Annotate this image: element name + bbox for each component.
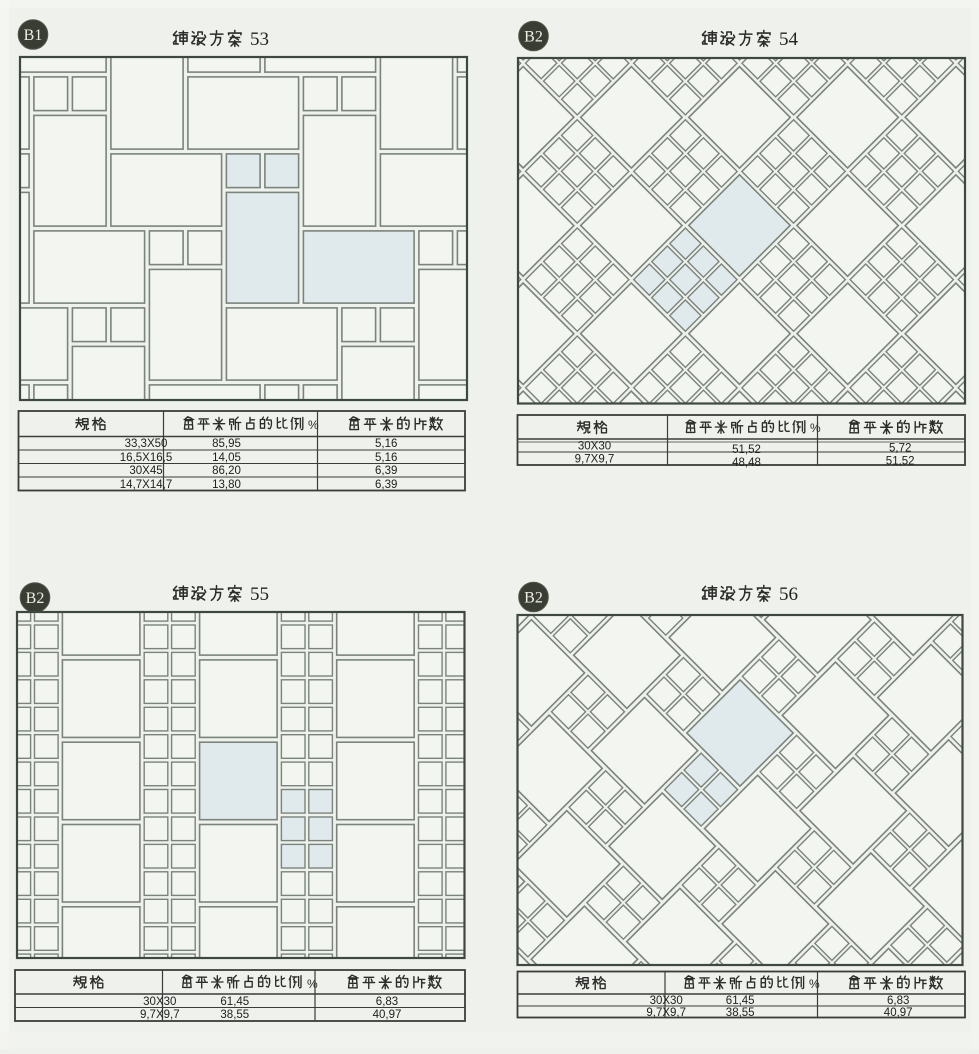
svg-text:6,39: 6,39: [375, 479, 397, 491]
svg-text:B2: B2: [524, 29, 543, 46]
svg-text:86,20: 86,20: [212, 465, 241, 477]
svg-text:9,7X9,7: 9,7X9,7: [575, 454, 615, 466]
svg-text:5,72: 5,72: [889, 443, 911, 455]
svg-text:6,83: 6,83: [887, 995, 909, 1007]
svg-text:13,80: 13,80: [212, 479, 241, 491]
svg-text:%: %: [307, 977, 318, 991]
svg-text:%: %: [809, 977, 820, 991]
svg-text:38,55: 38,55: [220, 1009, 249, 1021]
svg-text:40,97: 40,97: [884, 1007, 913, 1019]
svg-text:9,7X9,7: 9,7X9,7: [646, 1007, 686, 1019]
svg-text:14,05: 14,05: [212, 452, 241, 464]
svg-text:5,16: 5,16: [375, 452, 397, 464]
svg-text:B2: B2: [524, 590, 543, 607]
svg-text:38,55: 38,55: [726, 1007, 755, 1019]
svg-text:51,52: 51,52: [886, 456, 915, 468]
svg-text:30X30: 30X30: [143, 996, 176, 1008]
svg-text:14,7X14,7: 14,7X14,7: [120, 479, 172, 491]
svg-text:B1: B1: [24, 27, 43, 44]
svg-text:53: 53: [250, 29, 269, 50]
svg-text:B2: B2: [26, 590, 45, 607]
svg-text:33,3X50: 33,3X50: [125, 438, 168, 450]
svg-text:%: %: [810, 421, 821, 435]
svg-text:9,7X9,7: 9,7X9,7: [140, 1009, 180, 1021]
svg-text:%: %: [308, 418, 319, 432]
svg-text:40,97: 40,97: [373, 1009, 402, 1021]
svg-text:61,45: 61,45: [726, 995, 755, 1007]
svg-text:85,95: 85,95: [212, 438, 241, 450]
svg-text:6,39: 6,39: [375, 465, 397, 477]
svg-text:54: 54: [779, 29, 799, 50]
svg-text:30X30: 30X30: [650, 995, 683, 1007]
svg-text:51,52: 51,52: [732, 444, 761, 456]
svg-text:55: 55: [250, 584, 269, 605]
svg-text:48,48: 48,48: [732, 457, 761, 469]
svg-text:6,83: 6,83: [376, 996, 398, 1008]
svg-text:5,16: 5,16: [375, 438, 397, 450]
svg-text:56: 56: [779, 584, 798, 605]
svg-text:16,5X16,5: 16,5X16,5: [120, 452, 172, 464]
svg-text:30X45: 30X45: [129, 465, 162, 477]
svg-text:61,45: 61,45: [220, 996, 249, 1008]
